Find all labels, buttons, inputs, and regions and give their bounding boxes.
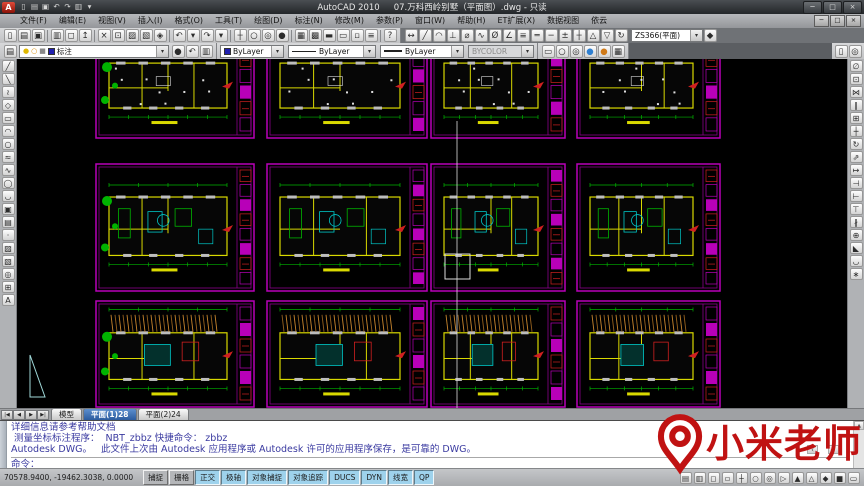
jogged-dimension-icon[interactable]: ∿ [475, 29, 488, 42]
autocad-logo-icon[interactable]: A [2, 2, 15, 13]
make-object-layer-current-icon[interactable]: ● [172, 45, 185, 58]
watermark: 小米老师 [654, 413, 862, 475]
copy-icon[interactable]: ⊡ [112, 29, 125, 42]
plot-style-value: BYCOLOR [472, 47, 507, 56]
qnew-icon[interactable]: ▯ [18, 1, 29, 13]
baseline-dimension-icon[interactable]: ═ [531, 29, 544, 42]
match-properties-icon[interactable]: ▧ [140, 29, 153, 42]
cut-icon[interactable]: × [98, 29, 111, 42]
region-icon[interactable]: ◎ [2, 268, 15, 280]
mdi-window-controls: ─□× [814, 15, 861, 27]
menu-item-3[interactable]: 插入(I) [132, 14, 169, 28]
layer-color-swatch [48, 48, 55, 55]
color-value: ByLayer [233, 47, 264, 56]
help-icon[interactable]: ? [384, 29, 397, 42]
layer-state-icons: ●○■ [23, 45, 48, 57]
coordinates-readout: 70578.9400, -19462.3038, 0.0000 [4, 473, 133, 482]
lineweight-sample [384, 50, 402, 52]
properties-icon[interactable]: ▦ [295, 29, 308, 42]
undo-icon[interactable]: ↶ [173, 29, 186, 42]
line-icon[interactable]: ╱ [2, 60, 15, 72]
close-button[interactable]: × [843, 1, 862, 14]
open-icon[interactable]: ▤ [29, 1, 40, 13]
title-bar: A ▯▤▣↶↷▥▾ AutoCAD 201007.万科西岭别墅（平面图）.dwg… [0, 0, 864, 14]
pan-icon[interactable]: ┼ [234, 29, 247, 42]
explode-icon[interactable]: ∗ [850, 268, 863, 280]
menu-item-1[interactable]: 编辑(E) [53, 14, 92, 28]
layout-tab-1[interactable]: 平面(1)28 [83, 408, 137, 420]
diameter-dimension-icon[interactable]: Ø [489, 29, 502, 42]
table-icon[interactable]: ⊞ [2, 281, 15, 293]
layout-tabs: 模型平面(1)28平面(2)24 [51, 408, 190, 420]
ordinate-dimension-icon[interactable]: ⊥ [447, 29, 460, 42]
layer-freeze-sun-icon: ○ [31, 45, 37, 57]
multiline-text-icon[interactable]: A [2, 294, 15, 306]
lineweight-value: ByLayer [405, 47, 436, 56]
zoom-realtime-icon[interactable]: ○ [248, 29, 261, 42]
plot-style-dropdown: BYCOLOR ▾ [468, 45, 534, 58]
trim-icon[interactable]: ⊣ [850, 177, 863, 189]
menu-item-13[interactable]: 数据视图 [541, 14, 585, 28]
break-icon[interactable]: ∦ [850, 216, 863, 228]
layer-name: 标注 [57, 46, 72, 57]
extend-icon[interactable]: ⊢ [850, 190, 863, 202]
hide-icon[interactable]: ▭ [542, 45, 555, 58]
revision-cloud-icon[interactable]: ≈ [2, 151, 15, 163]
polyline-icon[interactable]: ≀ [2, 86, 15, 98]
point-icon[interactable]: · [2, 229, 15, 241]
separator [94, 30, 95, 42]
erase-icon[interactable]: ∅ [850, 60, 863, 72]
color-dropdown[interactable]: ByLayer ▾ [220, 45, 284, 58]
toggle-ortho[interactable]: 正交 [195, 470, 220, 485]
status-toggles: 捕捉栅格正交极轴对象捕捉对象追踪DUCSDYN线宽QP [143, 470, 435, 485]
menu-item-2[interactable]: 视图(V) [92, 14, 132, 28]
properties-toolbar: ByLayer ▾ ByLayer ▾ ByLayer ▾ BYCOLOR ▾ [217, 43, 538, 59]
dimension-update-icon[interactable]: ↻ [615, 29, 628, 42]
toggle-otrack[interactable]: 对象追踪 [288, 470, 328, 485]
dim-style-value: ZS366(平面) [635, 30, 680, 41]
arc-icon[interactable]: ◠ [2, 125, 15, 137]
tool-palettes-icon[interactable]: ▬ [323, 29, 336, 42]
separator [47, 30, 48, 42]
menu-item-5[interactable]: 工具(T) [209, 14, 248, 28]
menu-item-12[interactable]: ET扩展(X) [491, 14, 541, 28]
layer-states-icon[interactable]: ▥ [200, 45, 213, 58]
linetype-value: ByLayer [319, 47, 350, 56]
scale-icon[interactable]: ⇗ [850, 151, 863, 163]
chevron-down-icon[interactable]: ▾ [271, 46, 283, 57]
linetype-sample [292, 51, 316, 52]
quick-dimension-icon[interactable]: ≡ [517, 29, 530, 42]
redo-icon[interactable]: ↷ [62, 1, 73, 13]
make-block-icon[interactable]: ▤ [2, 216, 15, 228]
plot-icon[interactable]: ▥ [73, 1, 84, 13]
ellipse-arc-icon[interactable]: ◡ [2, 190, 15, 202]
lineweight-dropdown[interactable]: ByLayer ▾ [380, 45, 464, 58]
dim-style-control-icon[interactable]: ◆ [704, 29, 717, 42]
construction-line-icon[interactable]: ╲ [2, 73, 15, 85]
zoom-previous-icon[interactable]: ● [276, 29, 289, 42]
layer-previous-icon[interactable]: ↶ [186, 45, 199, 58]
location-pin-icon [654, 413, 706, 475]
menu-item-4[interactable]: 格式(O) [168, 14, 209, 28]
continue-dimension-icon[interactable]: ─ [545, 29, 558, 42]
layer-lock-icon: ■ [39, 45, 46, 57]
layers-toolbar: ▤ ●○■ 标注 ▾ ●↶▥ [0, 43, 217, 59]
layout-tab-0[interactable]: 模型 [51, 408, 82, 420]
tab-first-button[interactable]: |◀ [1, 410, 13, 420]
toggle-snap[interactable]: 捕捉 [143, 470, 168, 485]
copy-icon[interactable]: ⊡ [850, 73, 863, 85]
qat-options-icon[interactable]: ▾ [84, 1, 95, 13]
save-icon[interactable]: ▣ [40, 1, 51, 13]
chamfer-icon[interactable]: ◣ [850, 242, 863, 254]
mdi-restore-button[interactable]: □ [830, 15, 845, 27]
array-icon[interactable]: ⊞ [850, 112, 863, 124]
properties-palette-icon[interactable]: ▯ [835, 45, 848, 58]
rotate-icon[interactable]: ↻ [850, 138, 863, 150]
draw-toolbar: ╱╲≀◇▭◠○≈∿◯◡▣▤·▨▧◎⊞A [0, 59, 17, 408]
minimize-button[interactable]: ─ [803, 1, 822, 14]
layer-tools: ●↶▥ [171, 45, 213, 58]
menu-bar: 文件(F)编辑(E)视图(V)插入(I)格式(O)工具(T)绘图(D)标注(N)… [0, 14, 864, 28]
tab-last-button[interactable]: ▶| [37, 410, 49, 420]
menu-items: 文件(F)编辑(E)视图(V)插入(I)格式(O)工具(T)绘图(D)标注(N)… [14, 14, 613, 28]
polygon-icon[interactable]: ◇ [2, 99, 15, 111]
ellipse-icon[interactable]: ◯ [2, 177, 15, 189]
shaded-sphere-icon[interactable]: ● [584, 45, 597, 58]
redo-drop-icon[interactable]: ▾ [215, 29, 228, 42]
layout-tab-2[interactable]: 平面(2)24 [138, 408, 189, 420]
chevron-down-icon: ▾ [521, 46, 533, 57]
zoom-window-icon[interactable]: ◎ [262, 29, 275, 42]
separator [291, 30, 292, 42]
menu-item-6[interactable]: 绘图(D) [248, 14, 288, 28]
undo-icon[interactable]: ↶ [51, 1, 62, 13]
layer-dropdown[interactable]: ●○■ 标注 ▾ [19, 45, 169, 58]
block-editor-icon[interactable]: ◈ [154, 29, 167, 42]
open-icon[interactable]: ▤ [18, 29, 31, 42]
toggle-lwt[interactable]: 线宽 [388, 470, 413, 485]
menu-item-0[interactable]: 文件(F) [14, 14, 53, 28]
dimension-text-edit-icon[interactable]: ▽ [601, 29, 614, 42]
menu-item-7[interactable]: 标注(N) [289, 14, 329, 28]
toggle-polar[interactable]: 极轴 [221, 470, 246, 485]
redo-icon[interactable]: ↷ [201, 29, 214, 42]
visual-styles-icon[interactable]: ◎ [570, 45, 583, 58]
corner-toolbar: ▯◎ [832, 43, 864, 59]
arc-length-dimension-icon[interactable]: ◠ [433, 29, 446, 42]
quick-access-toolbar: ▯▤▣↶↷▥▾ [18, 1, 95, 13]
menu-item-11[interactable]: 帮助(H) [451, 14, 491, 28]
gradient-icon[interactable]: ▧ [2, 255, 15, 267]
chevron-down-icon[interactable]: ▾ [451, 46, 463, 57]
separator [230, 30, 231, 42]
undo-drop-icon[interactable]: ▾ [187, 29, 200, 42]
maximize-button[interactable]: □ [823, 1, 842, 14]
chevron-down-icon[interactable]: ▾ [156, 46, 168, 57]
rectangle-icon[interactable]: ▭ [2, 112, 15, 124]
dimension-edit-icon[interactable]: △ [587, 29, 600, 42]
document-title: 07.万科西岭别墅（平面图）.dwg - 只读 [394, 3, 547, 13]
dim-style-dropdown[interactable]: ZS366(平面) ▾ [631, 29, 703, 42]
wireframe-icon[interactable]: ○ [556, 45, 569, 58]
standard-toolbar-row: ▯▤▣▥◻↥×⊡▨▧◈↶▾↷▾┼○◎●▦▩▬▭▫≡? ↔╱◠⊥⌀∿Ø∠≡═─±┼… [0, 28, 864, 43]
layer-properties-manager-icon[interactable]: ▤ [4, 45, 17, 58]
layer-manager-slot: ▤ [3, 45, 17, 58]
watermark-text: 小米老师 [706, 415, 862, 473]
dim-tail-icons: ◆ [703, 29, 717, 42]
plot-preview-icon[interactable]: ◻ [65, 29, 78, 42]
spline-icon[interactable]: ∿ [2, 164, 15, 176]
toggle-grid[interactable]: 栅格 [169, 470, 194, 485]
object-color-swatch [224, 48, 231, 55]
mdi-minimize-button[interactable]: ─ [814, 15, 829, 27]
linetype-dropdown[interactable]: ByLayer ▾ [288, 45, 376, 58]
mdi-close-button[interactable]: × [846, 15, 861, 27]
modify-toolbar: ∅⊡⋈∥⊞┼↻⇗↦⊣⊢⊤∦⊕◣◡∗ [847, 59, 864, 408]
window-controls: ─□× [803, 1, 862, 14]
quickcalc-palette-icon[interactable]: ◎ [849, 45, 862, 58]
standard-toolbar: ▯▤▣▥◻↥×⊡▨▧◈↶▾↷▾┼○◎●▦▩▬▭▫≡? [0, 28, 401, 43]
menu-item-8[interactable]: 修改(M) [329, 14, 370, 28]
app-title: AutoCAD 2010 [317, 3, 379, 13]
tab-next-button[interactable]: ▶ [25, 410, 37, 420]
chevron-down-icon[interactable]: ▾ [363, 46, 375, 57]
layer-on-bulb-icon: ● [23, 45, 29, 57]
layers-properties-toolbar-row: ▤ ●○■ 标注 ▾ ●↶▥ ByLayer ▾ ByLayer ▾ [0, 43, 864, 59]
offset-icon[interactable]: ∥ [850, 99, 863, 111]
mirror-icon[interactable]: ⋈ [850, 86, 863, 98]
render-icon[interactable]: ▦ [612, 45, 625, 58]
circle-icon[interactable]: ○ [2, 138, 15, 150]
menu-item-9[interactable]: 参数(P) [370, 14, 409, 28]
angular-dimension-icon[interactable]: ∠ [503, 29, 516, 42]
separator [169, 30, 170, 42]
break-at-point-icon[interactable]: ⊤ [850, 203, 863, 215]
markup-manager-icon[interactable]: ▫ [351, 29, 364, 42]
autocad-window: A ▯▤▣↶↷▥▾ AutoCAD 201007.万科西岭别墅（平面图）.dwg… [0, 0, 864, 486]
realistic-sphere-icon[interactable]: ● [598, 45, 611, 58]
tab-nav-buttons: |◀◀▶▶| [1, 410, 49, 420]
fillet-icon[interactable]: ◡ [850, 255, 863, 267]
toggle-ducs[interactable]: DUCS [329, 470, 360, 485]
render-toolbar: ▭○◎●●▦ [538, 43, 629, 59]
model-canvas[interactable] [17, 59, 847, 408]
hatch-icon[interactable]: ▨ [2, 242, 15, 254]
drawing-area: ╱╲≀◇▭◠○≈∿◯◡▣▤·▨▧◎⊞A ∅⊡⋈∥⊞┼↻⇗↦⊣⊢⊤∦⊕◣◡∗ [0, 59, 864, 408]
radius-dimension-icon[interactable]: ⌀ [461, 29, 474, 42]
publish-icon[interactable]: ↥ [79, 29, 92, 42]
menu-item-14[interactable]: 依云 [585, 14, 613, 28]
tab-prev-button[interactable]: ◀ [13, 410, 25, 420]
aligned-dimension-icon[interactable]: ╱ [419, 29, 432, 42]
paste-icon[interactable]: ▨ [126, 29, 139, 42]
toggle-osnap[interactable]: 对象捕捉 [247, 470, 287, 485]
join-icon[interactable]: ⊕ [850, 229, 863, 241]
command-window-grip[interactable] [0, 421, 7, 468]
dimension-toolbar: ↔╱◠⊥⌀∿Ø∠≡═─±┼△▽↻ ZS366(平面) ▾ ◆ [401, 28, 864, 43]
toggle-qp[interactable]: QP [414, 470, 434, 485]
insert-block-icon[interactable]: ▣ [2, 203, 15, 215]
chevron-down-icon[interactable]: ▾ [690, 30, 702, 41]
plot-icon[interactable]: ▥ [51, 29, 64, 42]
move-icon[interactable]: ┼ [850, 125, 863, 137]
tolerance-icon[interactable]: ± [559, 29, 572, 42]
center-mark-icon[interactable]: ┼ [573, 29, 586, 42]
linear-dimension-icon[interactable]: ↔ [405, 29, 418, 42]
sheetset-manager-icon[interactable]: ▭ [337, 29, 350, 42]
menu-item-10[interactable]: 窗口(W) [409, 14, 451, 28]
separator [380, 30, 381, 42]
dimension-icons: ↔╱◠⊥⌀∿Ø∠≡═─±┼△▽↻ [404, 29, 628, 42]
qnew-icon[interactable]: ▯ [4, 29, 17, 42]
quickcalc-icon[interactable]: ≡ [365, 29, 378, 42]
toggle-dyn[interactable]: DYN [361, 470, 387, 485]
stretch-icon[interactable]: ↦ [850, 164, 863, 176]
window-title: AutoCAD 201007.万科西岭别墅（平面图）.dwg - 只读 [0, 1, 864, 13]
save-icon[interactable]: ▣ [32, 29, 45, 42]
designcenter-icon[interactable]: ▩ [309, 29, 322, 42]
